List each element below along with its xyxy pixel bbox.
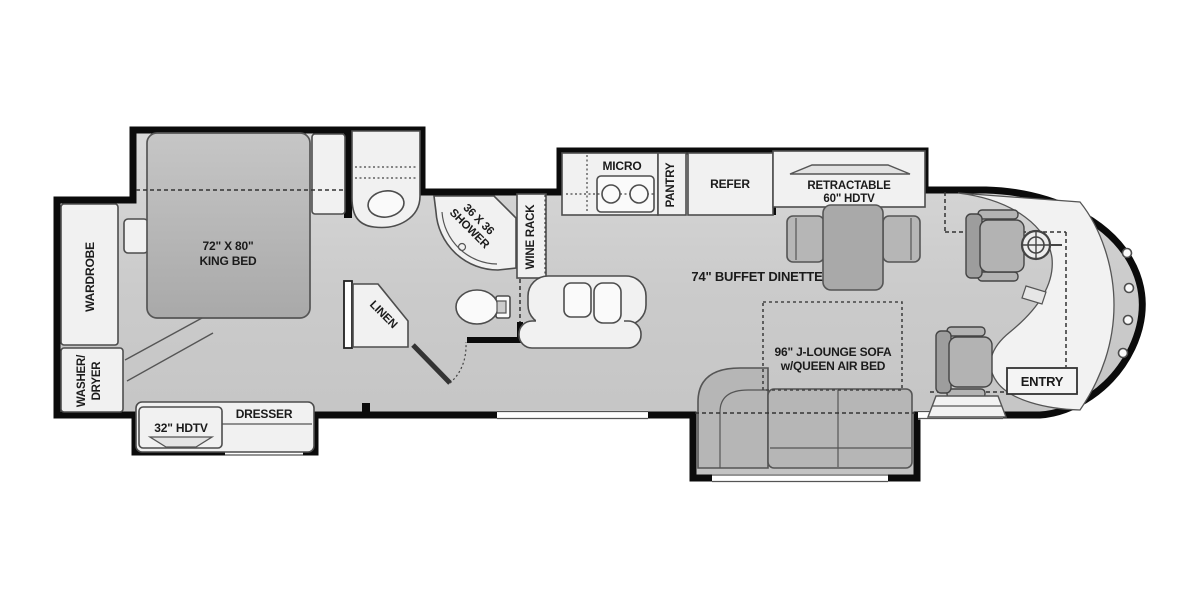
wardrobe-label: WARDROBE — [83, 242, 97, 312]
wine-rack-label: WINE RACK — [525, 204, 537, 270]
pantry-label: PANTRY — [665, 162, 677, 207]
washer-dryer-label-line2: DRYER — [91, 361, 103, 401]
tv32-label: 32" HDTV — [154, 421, 208, 435]
marker-light-3 — [1124, 316, 1133, 325]
passenger-seat — [936, 327, 992, 398]
king-bed-label-line2: KING BED — [199, 254, 257, 268]
nightstand-left — [124, 219, 148, 253]
dresser-label: DRESSER — [236, 407, 293, 421]
floorplan-page: WARDROBE WASHER/ DRYER 72" X 80" KING BE… — [0, 0, 1200, 600]
sofa-label-line2: w/QUEEN AIR BED — [780, 359, 886, 373]
wall-stub — [362, 403, 370, 412]
toilet-flush — [497, 301, 506, 313]
marker-light-4 — [1119, 349, 1128, 358]
king-bed-label-line1: 72" X 80" — [203, 239, 254, 253]
refer-label: REFER — [710, 177, 750, 191]
sofa-label-line1: 96" J-LOUNGE SOFA — [775, 345, 893, 359]
sofa-main — [768, 389, 912, 468]
retractable-label-line2: 60" HDTV — [823, 193, 875, 205]
sofa-chaise — [698, 368, 768, 468]
bedside-cabinet-right — [312, 134, 345, 214]
bedroom: WARDROBE WASHER/ DRYER 72" X 80" KING BE… — [61, 133, 345, 452]
toilet-bowl — [456, 290, 498, 324]
micro-label: MICRO — [603, 159, 642, 173]
king-bed — [147, 133, 310, 318]
island-counter — [519, 276, 646, 348]
dinette-table — [823, 205, 883, 290]
sink-basin-left — [564, 283, 591, 317]
retractable-tv-icon — [790, 165, 910, 174]
washer-dryer-label-line1: WASHER/ — [76, 354, 88, 407]
burner-icon-right — [630, 185, 648, 203]
sink-basin-right — [594, 283, 621, 323]
dinette-label: 74" BUFFET DINETTE — [691, 269, 823, 284]
floorplan-svg: WARDROBE WASHER/ DRYER 72" X 80" KING BE… — [0, 0, 1200, 600]
entry-label: ENTRY — [1021, 374, 1064, 389]
dinette-bench-right — [883, 216, 920, 262]
window-bottom-galley — [497, 411, 648, 420]
marker-light-1 — [1123, 249, 1132, 258]
burner-icon-left — [602, 185, 620, 203]
dinette-bench-left — [787, 216, 824, 262]
marker-light-2 — [1125, 284, 1134, 293]
driver-seat — [966, 210, 1024, 281]
wall-linen-panel — [344, 281, 352, 348]
retractable-label-line1: RETRACTABLE — [807, 180, 891, 192]
window-sofa-slide — [712, 474, 888, 483]
